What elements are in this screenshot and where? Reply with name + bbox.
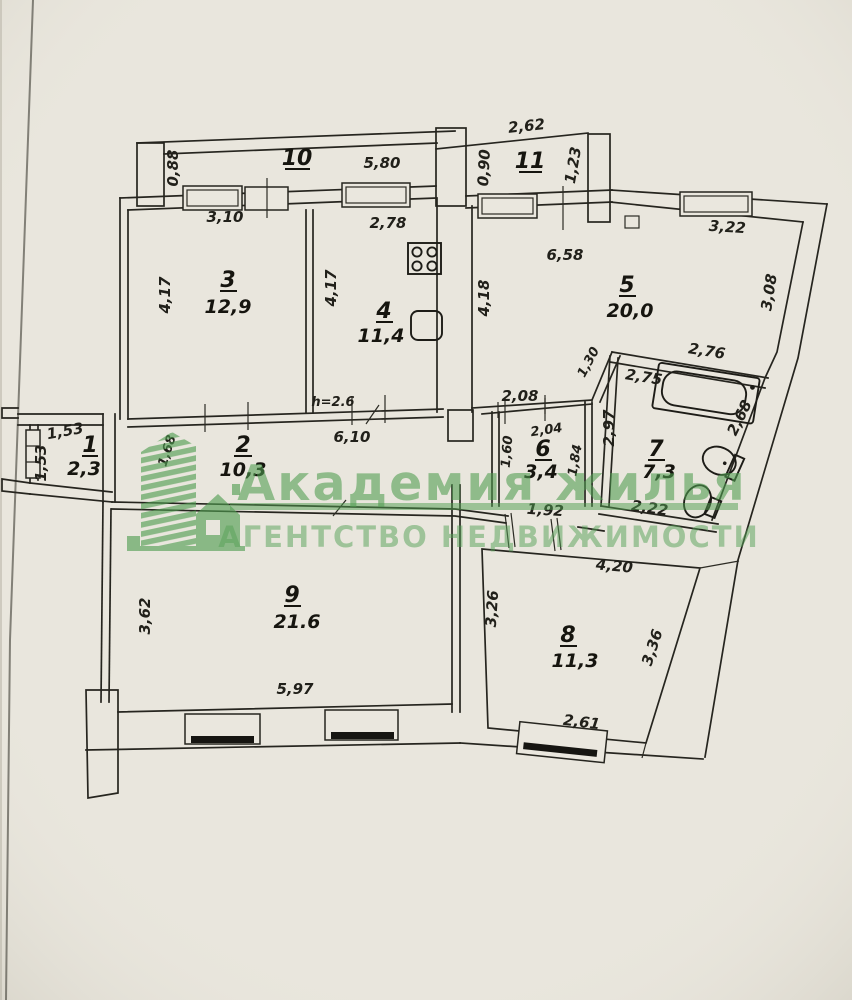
dim-label: 2,62 (507, 115, 546, 137)
window-sill (331, 732, 394, 739)
room-number: 5 (619, 273, 634, 298)
height-note: h=2.6 (311, 395, 354, 410)
watermark-underline (230, 503, 738, 510)
room-number: 11 (515, 149, 546, 174)
dim-label: 0,90 (474, 149, 494, 187)
room-area: 11,4 (358, 325, 405, 347)
room-area: 20,0 (607, 300, 654, 322)
room-number: 3 (220, 268, 235, 293)
dim-label: 3,62 (136, 597, 154, 634)
watermark-agency: АГЕНТСТВО НЕДВИЖИМОСТИ (218, 520, 760, 554)
dim-label: 4,18 (475, 279, 493, 317)
window-sill (191, 736, 254, 743)
room-number: 9 (284, 583, 299, 608)
dim-label: 5,97 (276, 680, 314, 698)
dim-label: 4,17 (156, 276, 174, 315)
dim-label: 1,53 (32, 444, 50, 481)
room-number: 8 (560, 623, 575, 648)
dim-label: 3,22 (708, 217, 746, 238)
dim-label: 6,58 (546, 246, 583, 264)
dim-label: 2,08 (501, 387, 538, 405)
dim-label: 2,97 (600, 409, 618, 447)
room-number: 10 (282, 146, 313, 171)
dim-label: 4,17 (322, 269, 340, 308)
dim-label: 3,10 (206, 208, 243, 226)
room-number: 4 (375, 299, 391, 324)
dim-label: 6,10 (333, 428, 370, 446)
dim-label: 0,88 (164, 149, 182, 186)
room-area: 11,3 (552, 650, 599, 672)
room-area: 12,9 (205, 296, 252, 318)
dim-label: 5,80 (363, 154, 400, 172)
room-area: 2,3 (67, 458, 101, 480)
dim-label: 2,78 (369, 214, 406, 232)
dim-label: 3,26 (482, 590, 503, 628)
floor-plan-drawing: 0,88 5,80 2,62 0,90 1,23 3,10 2,78 6,58 … (0, 0, 852, 1000)
room-area: 21.6 (274, 611, 321, 633)
scanned-floor-plan-page: 0,88 5,80 2,62 0,90 1,23 3,10 2,78 6,58 … (0, 0, 852, 1000)
room-number: 1 (82, 433, 97, 458)
dim-label: 4,20 (594, 555, 633, 576)
